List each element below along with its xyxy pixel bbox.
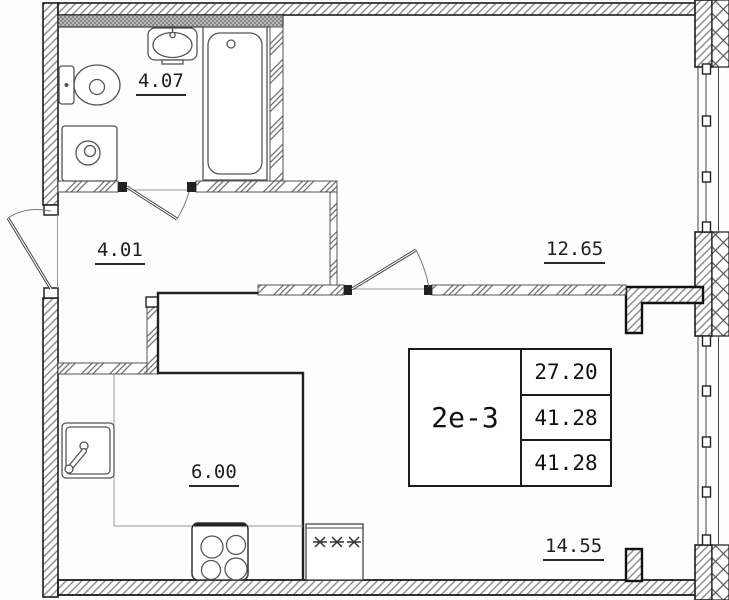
top-wall-duct [58,15,283,27]
doors [8,187,429,289]
kitchen-west-wall [147,307,158,374]
bottom-wall [58,580,698,595]
bathroom-east-wall [270,27,283,181]
floor-plan: 4.07 4.01 12.65 6.00 14.55 2е-3 27.20 41… [0,0,729,600]
floor-plan-drawing [0,0,729,600]
right-wall-middle [695,232,712,336]
bathroom-south-wall-left [58,181,118,192]
washbasin [148,24,197,64]
kitchen-counter-outline [114,373,303,526]
area-label-living-kitchen: 14.55 [543,537,604,561]
wall-pier [626,287,703,333]
kitchen-sink [62,423,114,478]
unit-info-table: 2е-3 27.20 41.28 41.28 [408,348,612,487]
unit-area-value-3: 41.28 [522,441,610,485]
right-wall-bottom-outer [712,545,729,600]
bathtub [203,27,267,180]
right-wall-bottom [695,545,712,600]
right-wall-middle-outer [712,232,729,336]
unit-area-value-1: 27.20 [522,350,610,396]
top-wall [58,3,697,15]
hallway-east-wall [330,192,337,287]
bathroom-fixtures [59,24,267,181]
entry-door [8,210,51,289]
kitchen-fixtures [62,423,363,580]
room-south-wall-left [258,285,344,295]
area-label-room: 12.65 [544,240,605,264]
kitchen-north-wall [58,363,147,374]
unit-code: 2е-3 [410,350,522,485]
stove [192,523,248,580]
window-lower [698,336,719,545]
toilet [59,65,120,105]
right-wall-top-outer [712,0,729,67]
area-label-kitchen: 6.00 [189,463,239,487]
left-wall-lower [43,298,58,597]
bathroom-door [127,187,189,219]
area-label-hallway: 4.01 [95,241,145,265]
bathroom-south-wall-right [196,181,337,192]
refrigerator [306,524,363,580]
right-wall-top [695,0,712,67]
window-upper [698,64,719,232]
washing-machine [62,126,117,181]
left-wall-upper [43,3,58,205]
room-door [352,250,429,289]
wall-stub-bottom [626,549,642,581]
room-south-wall-right [432,285,626,295]
area-label-bathroom: 4.07 [136,72,186,96]
unit-area-value-2: 41.28 [522,396,610,442]
